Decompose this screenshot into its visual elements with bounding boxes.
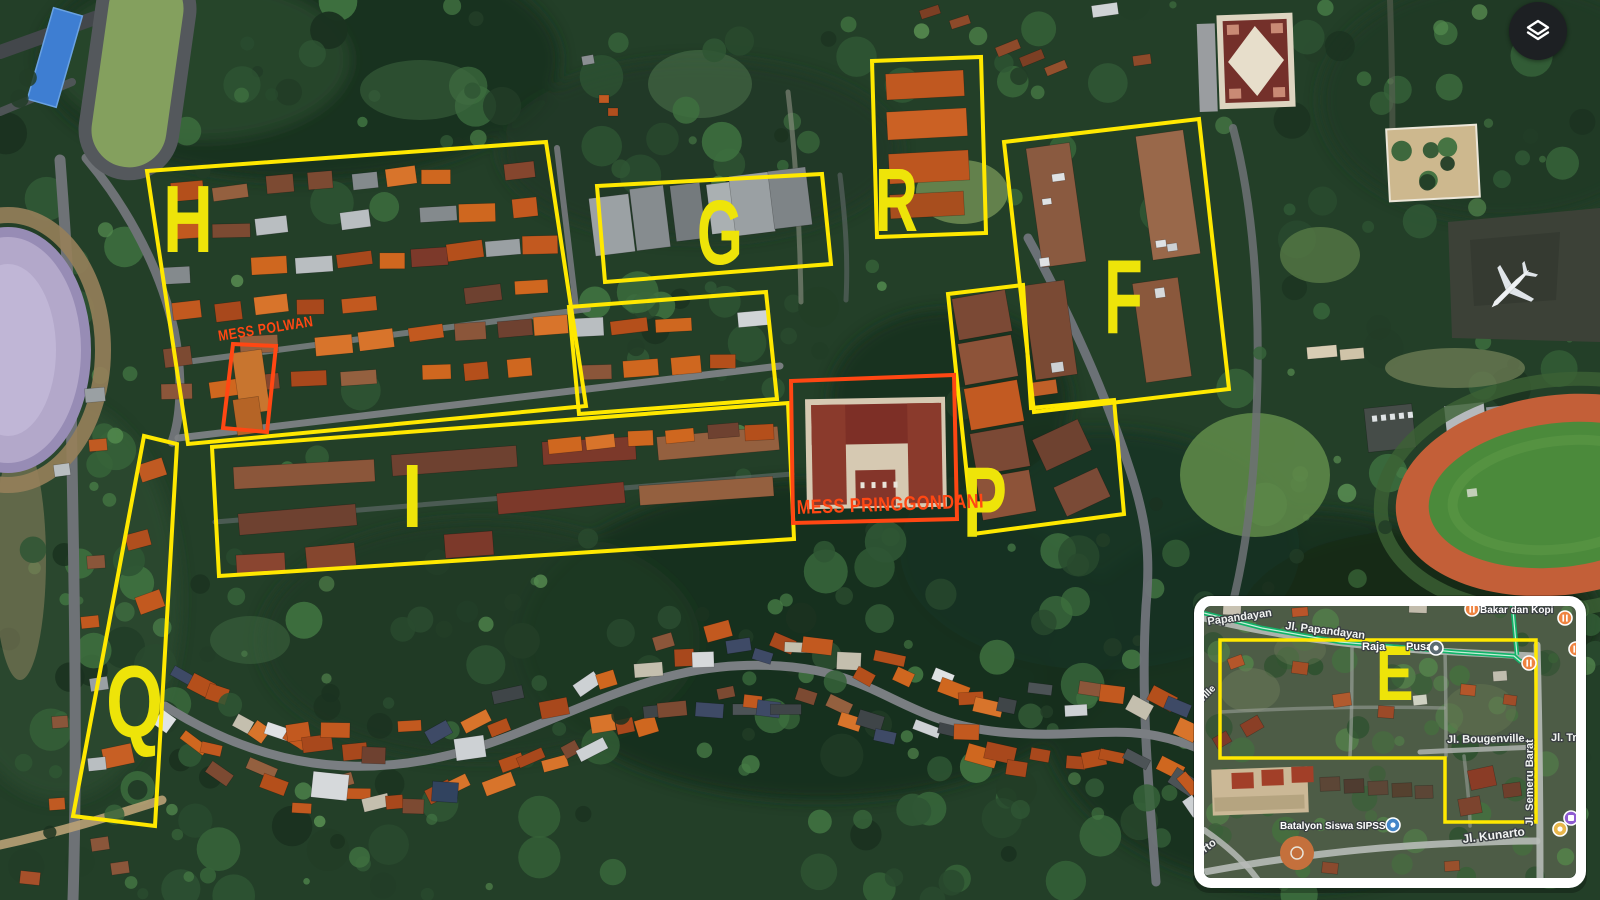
tree (1031, 86, 1045, 100)
tree (464, 82, 480, 98)
street-label: Jl. Bougenville (1447, 733, 1525, 746)
tree (1436, 74, 1463, 101)
tree (1001, 846, 1017, 862)
place-label: Batalyon Siswa SIPSS (1280, 821, 1386, 832)
house (608, 108, 618, 116)
house (507, 357, 533, 377)
house (110, 861, 129, 875)
house (1344, 779, 1364, 794)
house (1099, 684, 1125, 704)
tree (904, 640, 913, 649)
house (431, 781, 458, 803)
house (385, 165, 417, 187)
tree (742, 671, 756, 685)
tree (1317, 0, 1333, 16)
house (885, 70, 964, 100)
tree (275, 79, 302, 106)
house (454, 735, 487, 761)
house (512, 197, 539, 218)
tree (518, 836, 560, 878)
house (421, 170, 450, 185)
tree (390, 617, 415, 642)
house (87, 757, 106, 772)
restaurant-icon[interactable] (1522, 656, 1536, 670)
tree (798, 287, 839, 328)
tree (611, 159, 630, 178)
house (463, 361, 489, 381)
tree (370, 873, 396, 899)
house (454, 322, 486, 341)
tree (865, 521, 907, 563)
house (589, 194, 636, 256)
tree (469, 11, 484, 26)
tree (349, 847, 370, 868)
house (801, 636, 833, 655)
tree (1569, 109, 1595, 135)
house (952, 290, 1012, 341)
house (255, 215, 289, 235)
tree (172, 829, 183, 840)
tree (801, 853, 838, 890)
house (53, 463, 71, 477)
house (599, 95, 609, 103)
tree (1378, 520, 1392, 534)
place-label: Raja (1362, 641, 1386, 653)
place-label: Bakar dan Kopi (1480, 605, 1554, 616)
tree (218, 693, 242, 717)
tree (1372, 731, 1395, 754)
tree (1403, 204, 1437, 238)
house (90, 836, 110, 851)
house (1292, 607, 1309, 617)
house (623, 359, 659, 378)
tree (1362, 221, 1374, 233)
tree (295, 782, 312, 799)
house (580, 364, 611, 379)
tree (314, 816, 326, 828)
house (340, 369, 377, 386)
transit-icon[interactable] (1429, 641, 1443, 655)
tree (1366, 315, 1390, 339)
tree (1348, 569, 1367, 588)
satellite-map[interactable]: HGRFIPQMESS POLWANMESS PRINGGONDANI EPap… (0, 0, 1600, 900)
tree (1403, 829, 1427, 853)
house (1415, 785, 1433, 799)
house (548, 436, 583, 454)
tree (738, 763, 750, 775)
house (385, 795, 403, 810)
tree (1493, 170, 1511, 188)
tree (1289, 549, 1304, 564)
house (295, 256, 333, 274)
tree (925, 579, 956, 610)
tree (1484, 119, 1493, 128)
house (397, 720, 421, 732)
tree (107, 428, 123, 444)
house (695, 702, 724, 718)
tree (1557, 848, 1574, 865)
tree (1274, 102, 1311, 139)
house (307, 171, 333, 190)
tree (383, 697, 394, 708)
house (1064, 704, 1087, 717)
tree (10, 90, 28, 108)
tree (969, 27, 987, 45)
tree (86, 451, 113, 478)
tree (600, 859, 626, 885)
house (1413, 694, 1428, 705)
tree (853, 810, 872, 829)
house (1132, 54, 1151, 66)
tree (504, 623, 540, 659)
house (291, 370, 327, 387)
tree (1262, 582, 1275, 595)
house (1460, 684, 1476, 697)
tree (914, 23, 929, 38)
house (1392, 783, 1412, 798)
house (1307, 345, 1338, 360)
tree (980, 640, 1015, 675)
tree (19, 69, 37, 87)
tree (197, 827, 241, 871)
tree (695, 607, 710, 622)
house (52, 715, 69, 728)
house (744, 424, 774, 441)
tree (1290, 20, 1325, 55)
tree (20, 536, 47, 563)
tree (1472, 4, 1488, 20)
house (19, 870, 40, 885)
house (657, 700, 687, 718)
tree (1122, 650, 1142, 670)
tree (865, 604, 894, 633)
house (80, 615, 99, 629)
tree (1338, 484, 1357, 503)
place-blue-icon[interactable] (1386, 818, 1400, 832)
map-canvas[interactable]: HGRFIPQMESS POLWANMESS PRINGGONDANI EPap… (0, 0, 1600, 900)
tree (821, 31, 837, 47)
tree (673, 97, 700, 124)
tree (1333, 456, 1341, 464)
tree (866, 260, 879, 273)
tree (1357, 71, 1372, 86)
house (674, 649, 694, 667)
tree (190, 574, 210, 594)
house (254, 294, 289, 316)
tree (128, 780, 148, 800)
tree (357, 117, 367, 127)
tree (1287, 368, 1295, 376)
tree (530, 577, 538, 585)
tree (658, 606, 682, 630)
house (212, 223, 250, 238)
tree (330, 834, 345, 849)
house (671, 355, 702, 375)
house (419, 205, 457, 222)
tree (184, 871, 195, 882)
tree (303, 878, 310, 885)
house (1368, 781, 1388, 796)
tree (125, 876, 138, 889)
tree (49, 765, 62, 778)
house (886, 108, 967, 140)
tree (1007, 544, 1015, 552)
tree (456, 601, 478, 623)
tree (470, 130, 487, 147)
tree (877, 281, 887, 291)
tree (478, 617, 493, 632)
house (380, 253, 405, 269)
tree (240, 36, 254, 50)
street-label: Jl. Tri (1551, 732, 1580, 744)
house (314, 334, 353, 356)
tree (1046, 861, 1086, 900)
house (292, 802, 312, 813)
tree (367, 713, 393, 739)
house (1039, 257, 1050, 267)
house (634, 662, 664, 678)
tree (1061, 587, 1090, 616)
tree (627, 339, 644, 356)
tree (1523, 128, 1538, 143)
house (1005, 759, 1028, 777)
tree (1284, 203, 1296, 215)
inset-large-building (1211, 766, 1315, 816)
tree (811, 342, 828, 359)
house (1444, 860, 1460, 871)
tree (426, 814, 437, 825)
layers-button[interactable] (1509, 2, 1567, 60)
tree (231, 275, 243, 287)
tree (1091, 807, 1104, 820)
region-letter-R: R (875, 151, 918, 251)
inset-map-content[interactable]: EPapandayanJl. PapandayanJl. Bougenville… (1192, 600, 1583, 886)
tree (368, 824, 409, 865)
tree (1088, 63, 1128, 103)
tree (994, 53, 1013, 72)
temple-building (1196, 13, 1295, 112)
tree (89, 482, 98, 491)
inset-map[interactable]: EPapandayanJl. PapandayanJl. Bougenville… (1192, 595, 1587, 893)
house (358, 328, 395, 351)
house (251, 256, 288, 275)
house (352, 172, 379, 191)
house (1503, 694, 1517, 706)
walled-compound (1386, 125, 1480, 202)
tree (98, 222, 113, 237)
tree (1546, 147, 1579, 180)
house (1502, 782, 1522, 798)
tree (702, 122, 742, 162)
region-letter-I: I (402, 447, 423, 547)
tree (1079, 815, 1121, 857)
house (1320, 777, 1340, 792)
tree (1392, 854, 1413, 875)
tree (518, 796, 560, 838)
region-letter-G: G (697, 182, 743, 284)
tree (552, 722, 566, 736)
house (1051, 361, 1065, 372)
tree (43, 826, 56, 839)
tree (1394, 736, 1404, 746)
tree (841, 16, 857, 32)
house (311, 771, 350, 801)
tree (504, 594, 522, 612)
tree (646, 123, 679, 156)
tree (1096, 533, 1110, 547)
layers-icon (1522, 15, 1554, 47)
house (1493, 671, 1508, 682)
house (422, 364, 451, 380)
tree (607, 619, 635, 647)
tree (375, 769, 405, 799)
house (402, 799, 424, 814)
tree (1449, 665, 1470, 686)
house (1042, 198, 1052, 205)
house (1332, 692, 1352, 707)
tree (234, 88, 249, 103)
tree (1018, 704, 1043, 729)
tree (321, 673, 331, 683)
tree (797, 131, 820, 154)
tree (813, 541, 835, 563)
house (533, 315, 568, 336)
house (89, 438, 108, 452)
tree (137, 888, 148, 899)
tree (1010, 67, 1028, 85)
tree (1149, 497, 1162, 510)
house (1291, 661, 1309, 675)
tree (1308, 187, 1337, 216)
house (458, 203, 495, 222)
tree (30, 708, 72, 750)
house (628, 430, 654, 446)
tree (1103, 638, 1121, 656)
tree (1040, 705, 1053, 718)
tree (1433, 20, 1448, 35)
tree (435, 621, 452, 638)
tree (575, 806, 591, 822)
house (836, 652, 861, 671)
tree (1085, 778, 1104, 797)
house (87, 555, 106, 569)
tree (483, 87, 521, 125)
restaurant-icon[interactable] (1558, 611, 1572, 625)
house (444, 531, 494, 559)
tree (927, 756, 952, 781)
tree (319, 576, 335, 592)
tree (265, 88, 278, 101)
house (1155, 239, 1166, 248)
place-yellow-icon[interactable] (1553, 822, 1567, 836)
house (737, 310, 771, 328)
house (514, 279, 548, 294)
tree (689, 136, 697, 144)
house (665, 428, 695, 444)
house (964, 380, 1024, 431)
house (1167, 243, 1178, 252)
tree (1021, 11, 1056, 46)
house (522, 235, 558, 254)
tree (774, 128, 788, 142)
house (497, 319, 533, 338)
house (161, 383, 192, 399)
tree (908, 748, 919, 759)
tree (1169, 1, 1176, 8)
tree (166, 804, 178, 816)
region-letter-F: F (1104, 237, 1143, 356)
lodging-icon[interactable] (1564, 811, 1578, 825)
tree (15, 754, 33, 772)
house (341, 296, 377, 314)
house (1321, 862, 1338, 875)
tree (1539, 156, 1546, 163)
house (266, 174, 295, 194)
tree (466, 645, 505, 684)
house (707, 422, 739, 439)
tree (725, 26, 754, 55)
tree (1133, 784, 1160, 811)
tree (780, 593, 793, 606)
tree (1068, 772, 1081, 785)
tree (938, 870, 964, 896)
tree (123, 366, 138, 381)
house (692, 652, 714, 668)
house (655, 318, 692, 333)
house (340, 209, 371, 230)
tree (808, 810, 832, 834)
tree (321, 684, 339, 702)
tree (608, 32, 629, 53)
tree (1325, 31, 1355, 61)
tree (307, 829, 349, 871)
house (504, 161, 536, 181)
tree (702, 38, 726, 62)
house (1458, 796, 1483, 817)
house (49, 797, 66, 810)
tree (299, 40, 326, 67)
tree (578, 528, 598, 548)
tree (1468, 198, 1486, 216)
house (321, 722, 351, 738)
tree (697, 743, 713, 759)
tree (885, 868, 903, 886)
tree (1162, 540, 1190, 568)
tree (1031, 610, 1057, 636)
tree (440, 135, 453, 148)
house (1052, 173, 1066, 182)
house (411, 247, 449, 267)
tree (1369, 766, 1386, 783)
house (954, 724, 980, 740)
tree (227, 588, 245, 606)
tree (611, 706, 630, 725)
house (958, 335, 1018, 386)
tree (1515, 150, 1530, 165)
tree (1313, 303, 1330, 320)
region-letter-Q: Q (106, 645, 163, 759)
house (629, 185, 670, 251)
tree (1067, 554, 1089, 576)
tree (486, 883, 493, 890)
region-letter-H: H (163, 165, 213, 273)
house (1154, 287, 1165, 298)
tree (780, 328, 797, 345)
tree (820, 734, 863, 777)
tree (901, 730, 913, 742)
tree (581, 126, 622, 167)
tree (835, 587, 853, 605)
